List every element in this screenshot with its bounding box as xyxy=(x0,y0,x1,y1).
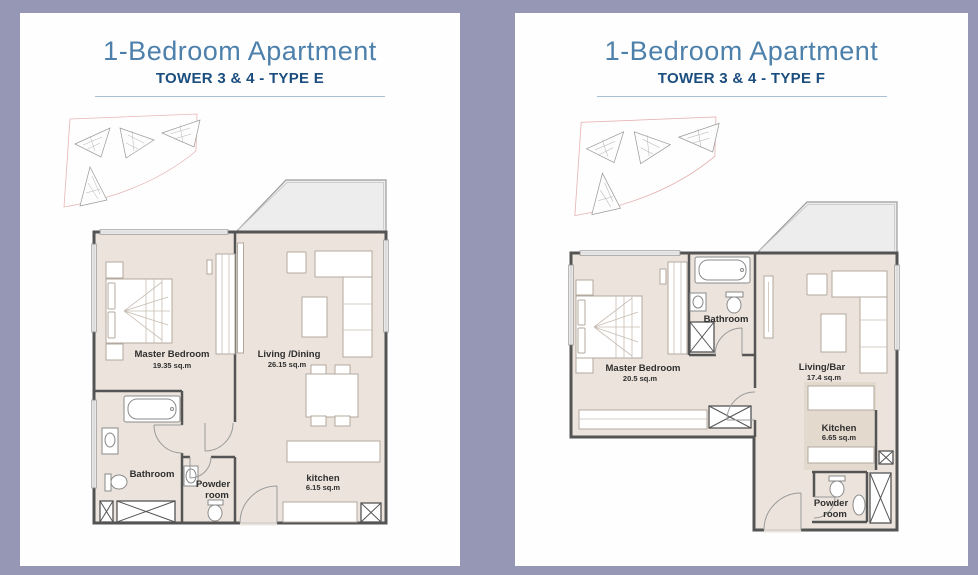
room-area-master: 19.35 sq.m xyxy=(153,361,192,370)
room-area-living: 26.15 sq.m xyxy=(268,360,307,369)
coffee-table xyxy=(302,297,327,337)
closet-bench xyxy=(579,410,707,429)
bathtub xyxy=(124,396,180,422)
powder-toilet xyxy=(208,500,223,521)
floorplan-card-type-e: 1-Bedroom Apartment TOWER 3 & 4 - TYPE E xyxy=(20,13,460,566)
powder-sink xyxy=(853,495,865,515)
floorplan-card-type-f: 1-Bedroom Apartment TOWER 3 & 4 - TYPE F xyxy=(515,13,968,566)
header-divider xyxy=(95,96,385,97)
floor-plan-type-f: Master Bedroom 20.5 sq.m Bathroom Living… xyxy=(554,170,914,560)
floor-plan-type-e: Master Bedroom 19.35 sq.m Living /Dining… xyxy=(84,170,394,535)
brochure-page: 1-Bedroom Apartment TOWER 3 & 4 - TYPE E xyxy=(0,0,978,575)
coffee-table xyxy=(821,314,846,352)
room-label-bathroom: Bathroom xyxy=(130,469,175,480)
tower-type-subtitle: TOWER 3 & 4 - TYPE E xyxy=(20,70,460,87)
room-label-powder-1: Powder xyxy=(814,498,849,509)
dining-table xyxy=(306,365,358,426)
site-tower-1 xyxy=(587,132,624,163)
page-title: 1-Bedroom Apartment xyxy=(20,37,460,67)
room-label-powder-2: room xyxy=(823,509,847,520)
card-header: 1-Bedroom Apartment TOWER 3 & 4 - TYPE F xyxy=(515,13,968,97)
site-tower-3 xyxy=(679,123,719,152)
site-tower-2 xyxy=(120,128,154,158)
armchair xyxy=(807,274,827,295)
room-label-living: Living /Dining xyxy=(258,349,321,360)
room-label-living: Living/Bar xyxy=(799,362,846,373)
sink xyxy=(690,293,706,311)
site-tower-1 xyxy=(75,128,110,157)
room-label-bathroom: Bathroom xyxy=(704,314,749,325)
card-header: 1-Bedroom Apartment TOWER 3 & 4 - TYPE E xyxy=(20,13,460,97)
header-divider xyxy=(597,96,887,97)
page-title: 1-Bedroom Apartment xyxy=(515,37,968,67)
room-label-powder-1: Powder xyxy=(196,479,231,490)
room-area-kitchen: 6.15 sq.m xyxy=(306,483,341,492)
room-label-master: Master Bedroom xyxy=(135,349,210,360)
room-label-powder-2: room xyxy=(205,490,229,501)
site-tower-3 xyxy=(162,120,200,147)
sink xyxy=(102,428,118,454)
room-label-master: Master Bedroom xyxy=(606,363,681,374)
tv-console xyxy=(764,276,773,338)
bathtub xyxy=(695,257,750,283)
room-area-living: 17.4 sq.m xyxy=(807,373,842,382)
tower-type-subtitle: TOWER 3 & 4 - TYPE F xyxy=(515,70,968,87)
room-area-master: 20.5 sq.m xyxy=(623,374,658,383)
room-area-kitchen: 6.65 sq.m xyxy=(822,433,857,442)
balcony xyxy=(757,202,897,253)
site-tower-2 xyxy=(634,132,670,164)
armchair xyxy=(287,252,306,273)
balcony xyxy=(236,180,386,232)
tv-console xyxy=(238,243,244,353)
powder-toilet xyxy=(829,476,845,497)
